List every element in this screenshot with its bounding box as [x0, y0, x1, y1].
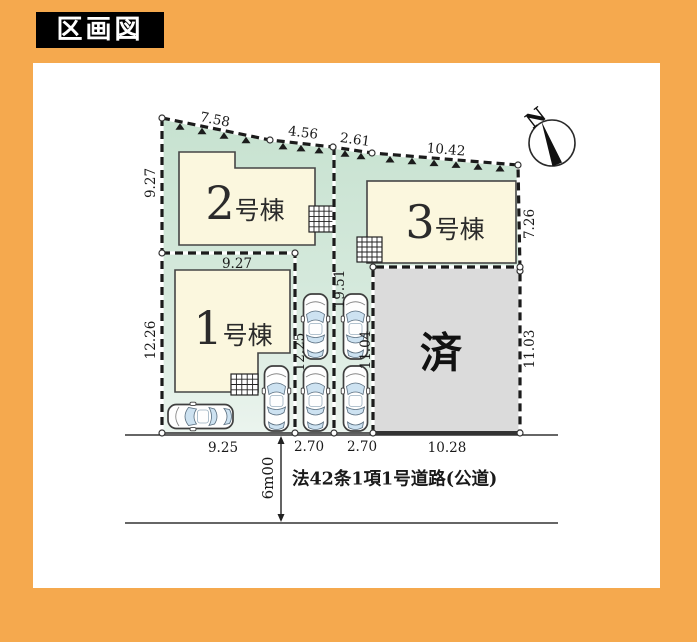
dim-bottom-3: 2.70	[347, 439, 377, 455]
sold-plot-label: 済	[420, 320, 462, 381]
dim-left-lower: 12.26	[143, 321, 159, 360]
building-1-label: 1号棟	[193, 301, 272, 355]
building-3-number: 3	[405, 195, 434, 249]
porch-grid-building2	[309, 206, 334, 232]
dim-bottom-2: 2.70	[294, 439, 324, 455]
building-3-label: 3号棟	[405, 195, 484, 249]
porch-grid-building3	[357, 237, 382, 262]
site-plan-svg: N	[0, 0, 697, 642]
building-3-suffix: 号棟	[435, 215, 485, 244]
dim-right-lower: 11.03	[522, 330, 538, 369]
dim-plot1-top: 9.27	[222, 256, 252, 272]
dim-top-4: 10.42	[426, 140, 466, 159]
dim-bottom-1: 9.25	[208, 440, 238, 456]
dim-inner-left: 12.25	[292, 333, 308, 372]
building-2-number: 2	[205, 176, 234, 230]
building-2-suffix: 号棟	[235, 196, 285, 225]
road-width-arrow	[278, 436, 285, 522]
compass: N	[520, 102, 575, 167]
dim-left-upper: 9.27	[143, 168, 159, 198]
car-plot1-vertical	[262, 366, 291, 431]
car-plot1-horizontal	[168, 402, 233, 431]
plot-map-page: 区画図	[0, 0, 697, 642]
dim-inner-right: 11.04	[358, 331, 374, 370]
car-strip1-bottom	[301, 366, 330, 431]
car-strip2-bottom	[341, 366, 370, 431]
road-width-label: 6m00	[259, 457, 277, 500]
dim-right-upper: 7.26	[522, 209, 538, 239]
road-name-label: 法42条1項1号道路(公道)	[292, 466, 497, 491]
porch-grid-building1	[231, 374, 258, 395]
building-2-label: 2号棟	[205, 176, 284, 230]
building-1-suffix: 号棟	[223, 321, 273, 350]
building-1-number: 1	[193, 301, 222, 355]
dim-inner-mid: 19.51	[332, 270, 348, 309]
dim-bottom-4: 10.28	[428, 440, 467, 456]
